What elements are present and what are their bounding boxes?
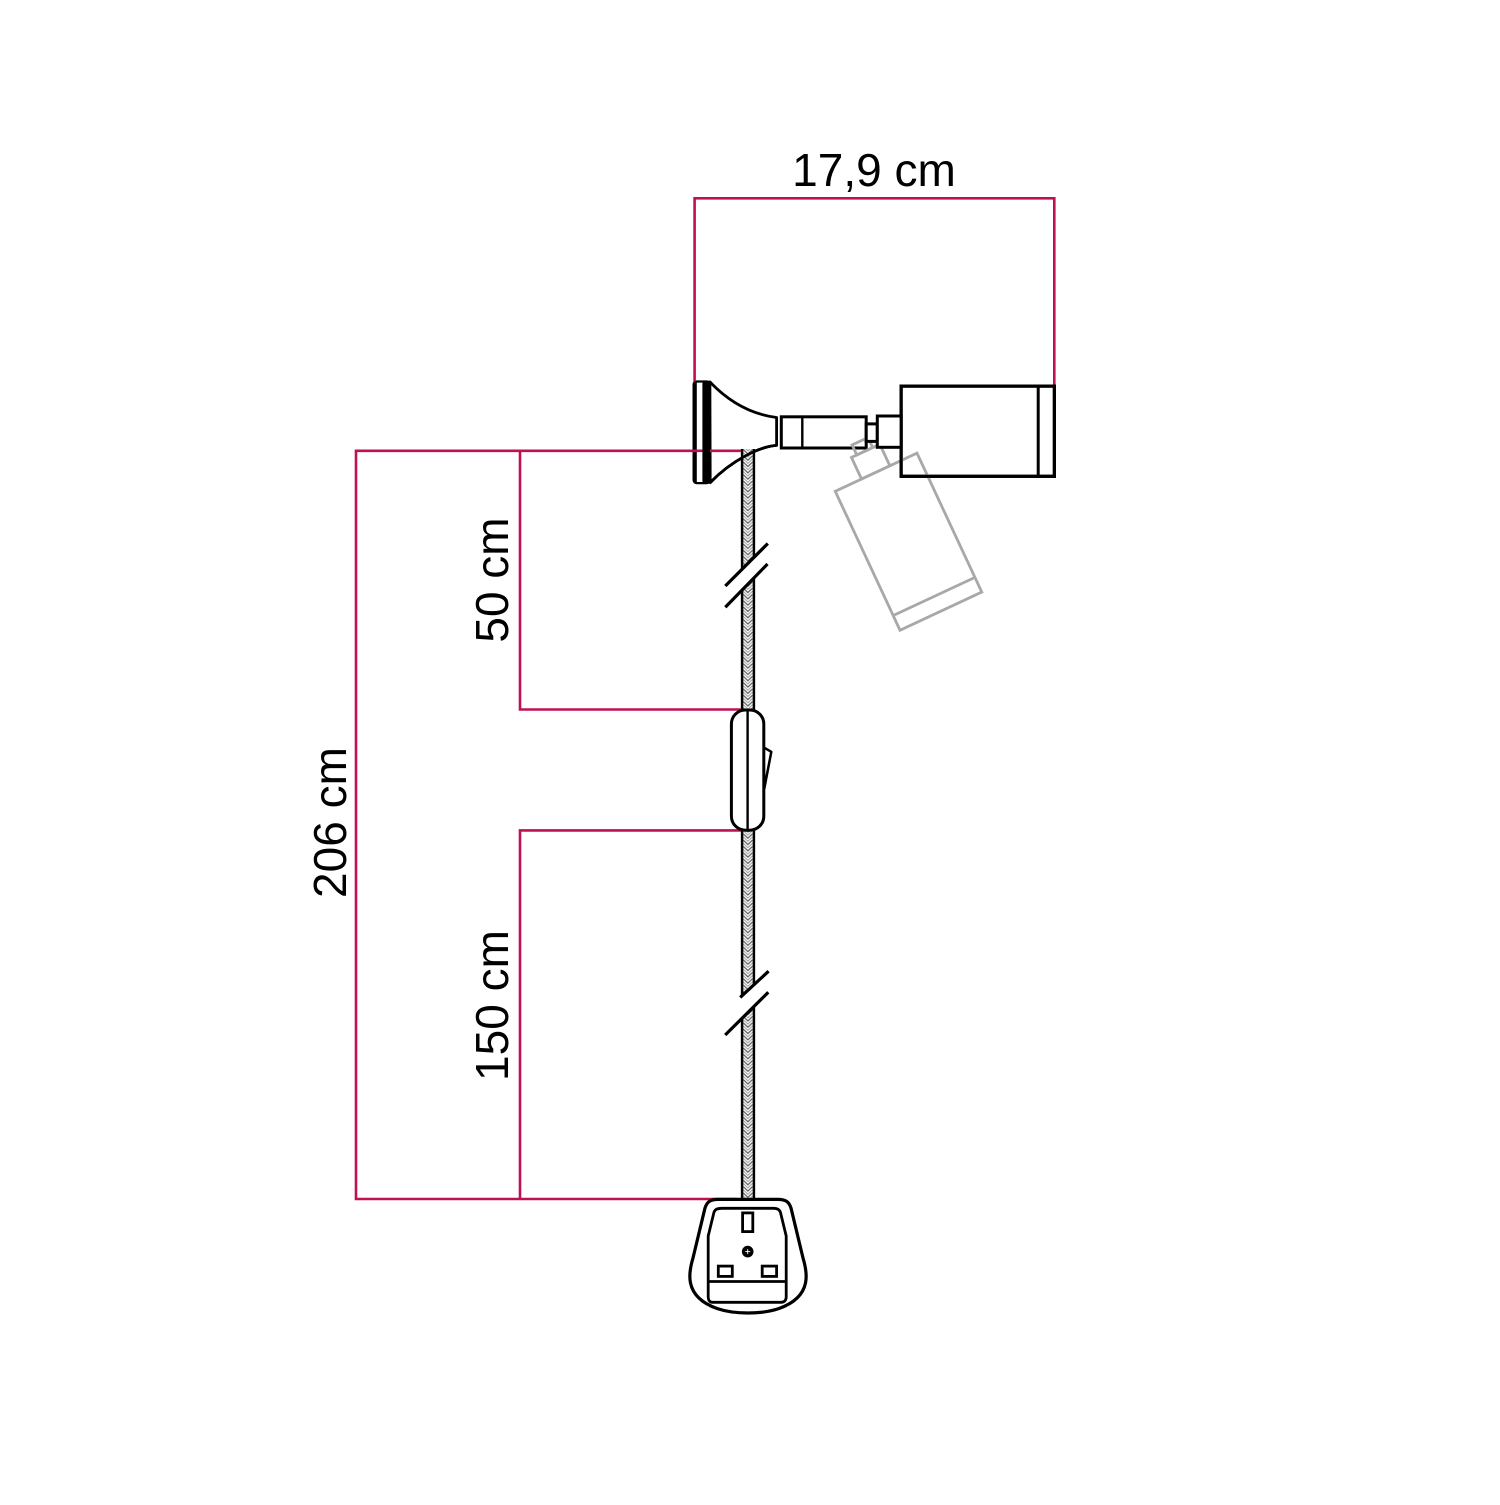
svg-text:50 cm: 50 cm (466, 517, 518, 642)
svg-text:17,9 cm: 17,9 cm (792, 144, 956, 196)
svg-text:150 cm: 150 cm (466, 930, 518, 1081)
svg-text:206 cm: 206 cm (304, 747, 356, 898)
